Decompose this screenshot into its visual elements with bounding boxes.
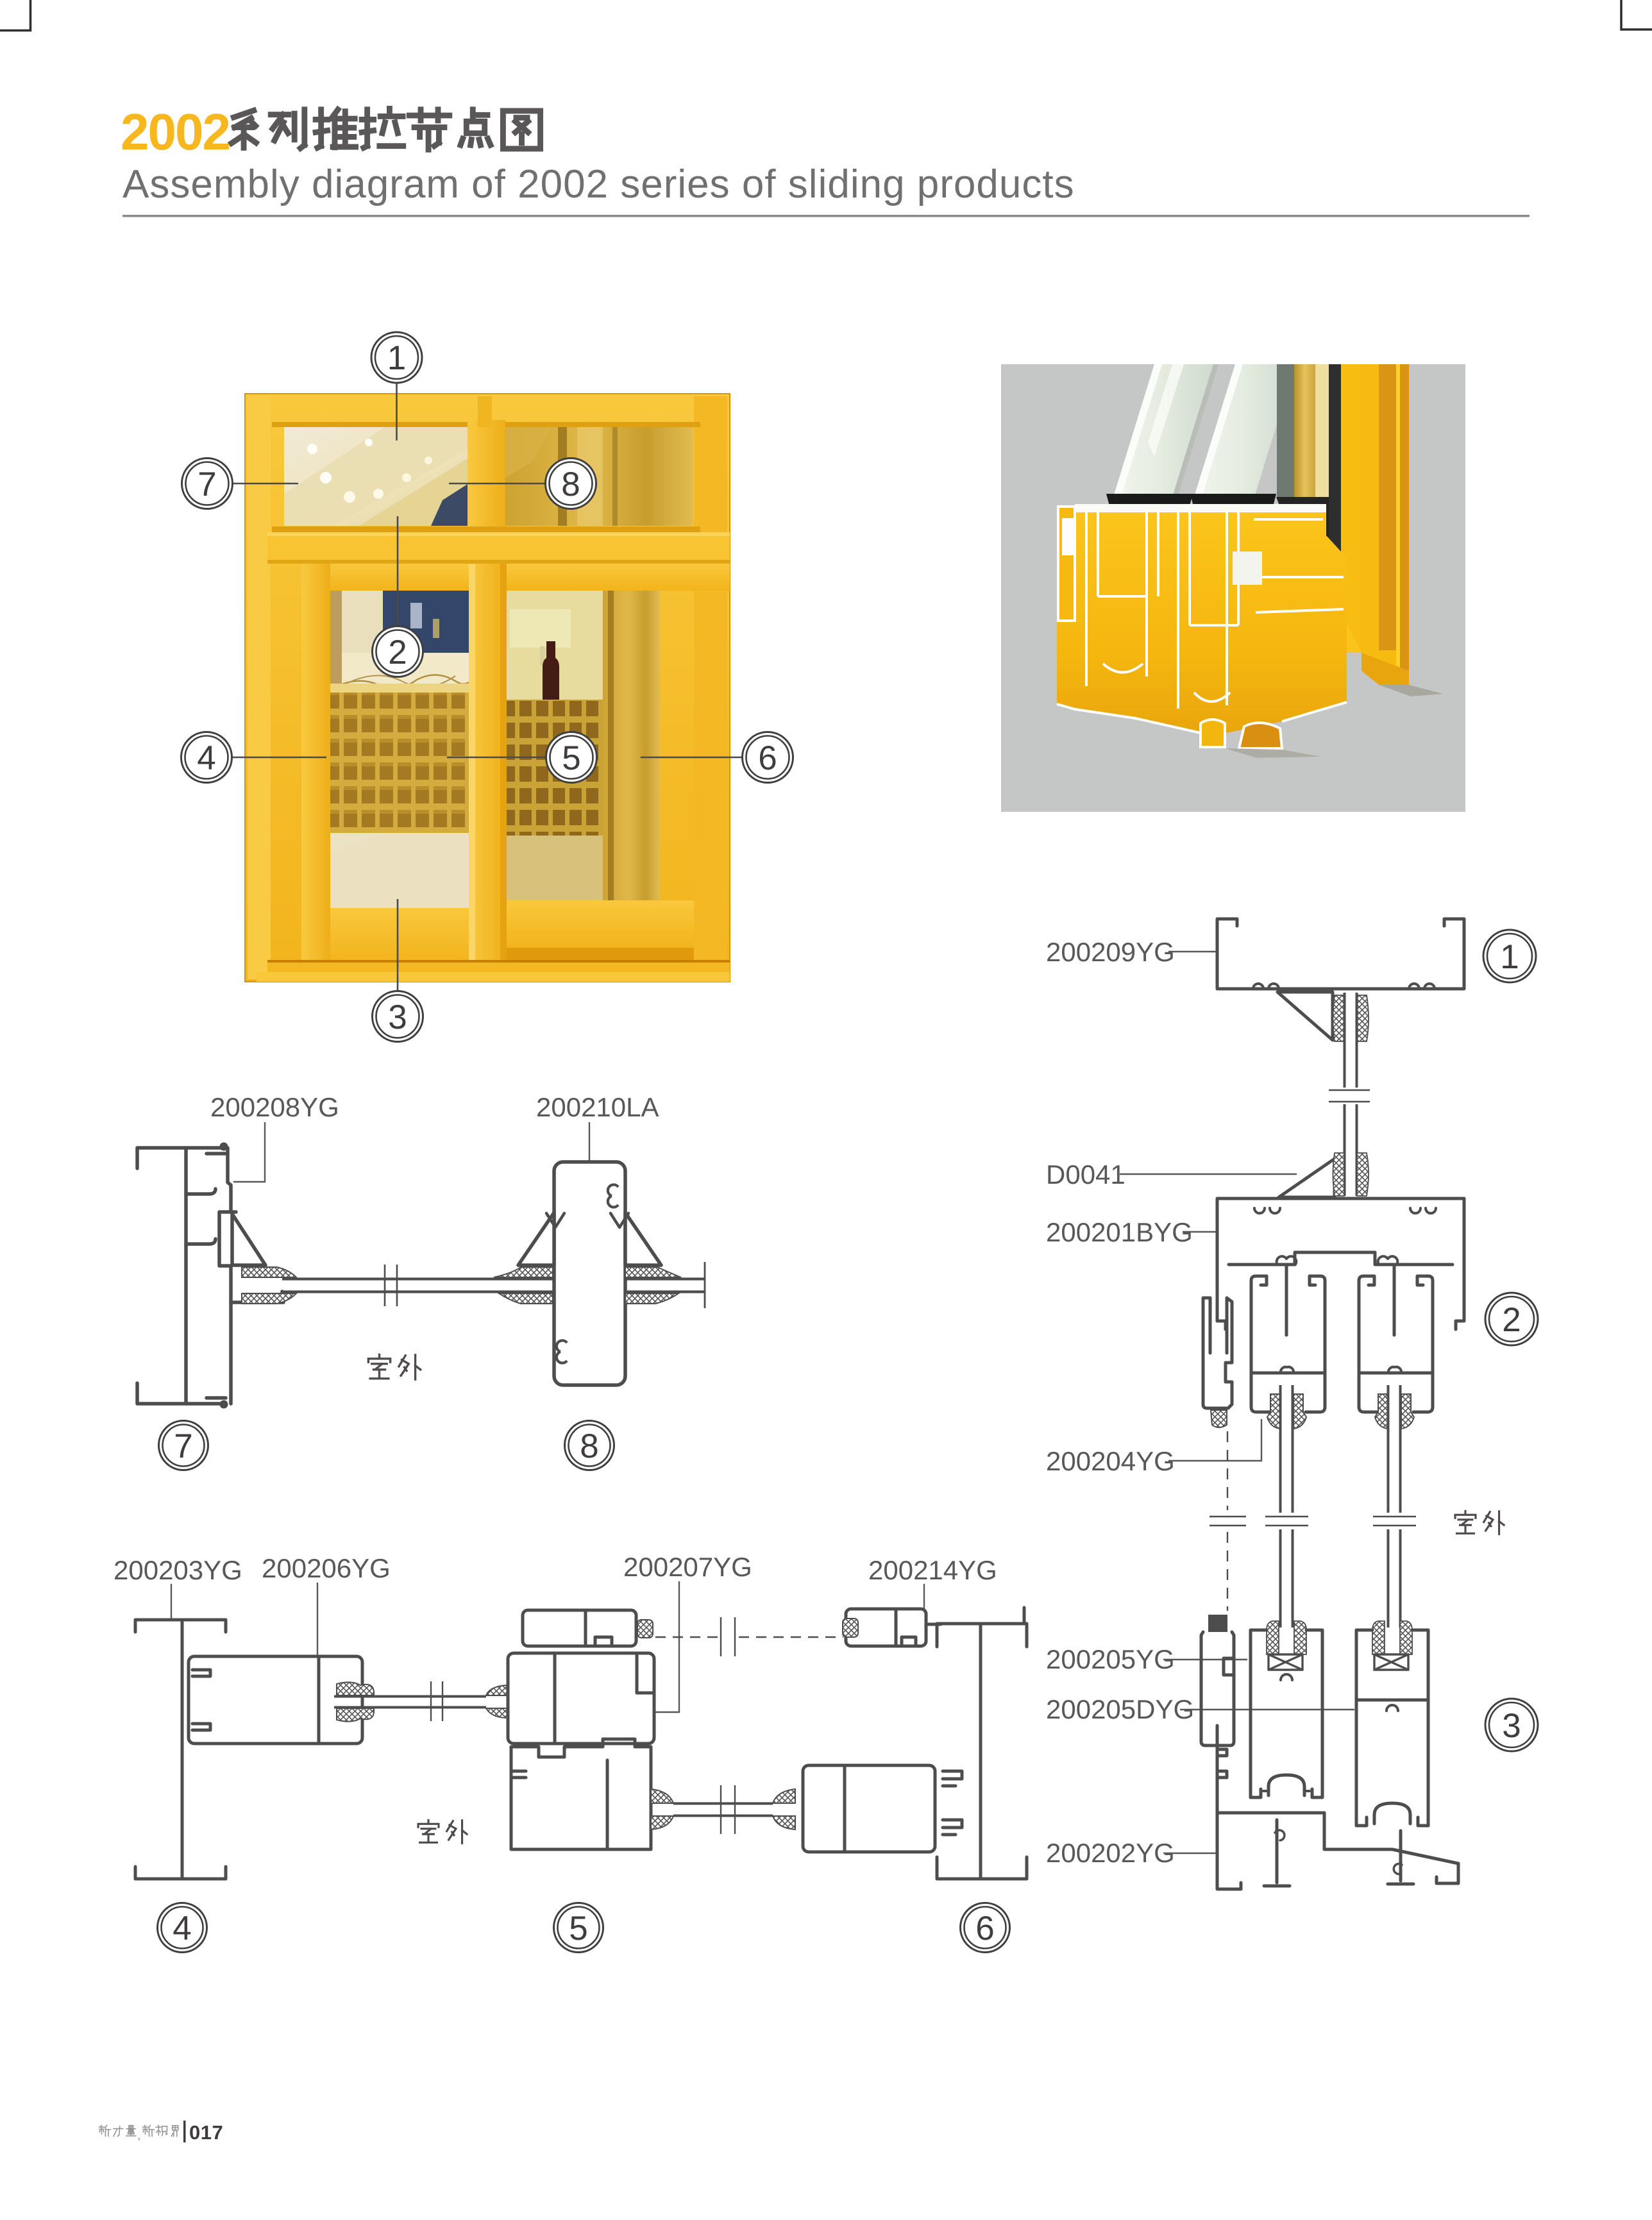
svg-text:200204YG: 200204YG bbox=[1046, 1446, 1175, 1476]
svg-text:4: 4 bbox=[173, 1910, 191, 1947]
svg-text:200214YG: 200214YG bbox=[868, 1555, 997, 1585]
svg-text:5: 5 bbox=[562, 739, 580, 777]
svg-text:200206YG: 200206YG bbox=[262, 1553, 391, 1583]
svg-text:6: 6 bbox=[975, 1910, 994, 1947]
svg-text:8: 8 bbox=[580, 1427, 598, 1465]
svg-text:017: 017 bbox=[189, 2121, 223, 2144]
svg-text:6: 6 bbox=[758, 739, 777, 777]
svg-text:5: 5 bbox=[569, 1910, 587, 1947]
svg-text:200205YG: 200205YG bbox=[1046, 1644, 1175, 1674]
svg-text:3: 3 bbox=[1502, 1707, 1521, 1745]
svg-text:200207YG: 200207YG bbox=[623, 1552, 752, 1582]
svg-text:200208YG: 200208YG bbox=[210, 1092, 339, 1122]
svg-text:2: 2 bbox=[388, 634, 407, 671]
svg-text:3: 3 bbox=[388, 998, 407, 1036]
svg-text:Assembly diagram of 2002 serie: Assembly diagram of 2002 series of slidi… bbox=[122, 162, 1075, 206]
svg-text:4: 4 bbox=[197, 739, 215, 777]
svg-text:1: 1 bbox=[1500, 938, 1519, 976]
svg-text:200209YG: 200209YG bbox=[1046, 937, 1175, 967]
svg-text:200203YG: 200203YG bbox=[114, 1555, 242, 1585]
svg-text:,: , bbox=[137, 2128, 141, 2142]
svg-text:200201BYG: 200201BYG bbox=[1046, 1217, 1193, 1247]
svg-text:D0041: D0041 bbox=[1046, 1159, 1125, 1190]
svg-text:7: 7 bbox=[198, 466, 216, 503]
svg-text:200210LA: 200210LA bbox=[536, 1092, 659, 1122]
svg-text:7: 7 bbox=[174, 1427, 192, 1465]
svg-text:200202YG: 200202YG bbox=[1046, 1838, 1175, 1868]
svg-text:200205DYG: 200205DYG bbox=[1046, 1694, 1194, 1724]
svg-text:2002: 2002 bbox=[121, 103, 230, 160]
svg-text:8: 8 bbox=[561, 466, 580, 503]
svg-text:1: 1 bbox=[387, 339, 406, 377]
svg-text:2: 2 bbox=[1502, 1301, 1521, 1339]
